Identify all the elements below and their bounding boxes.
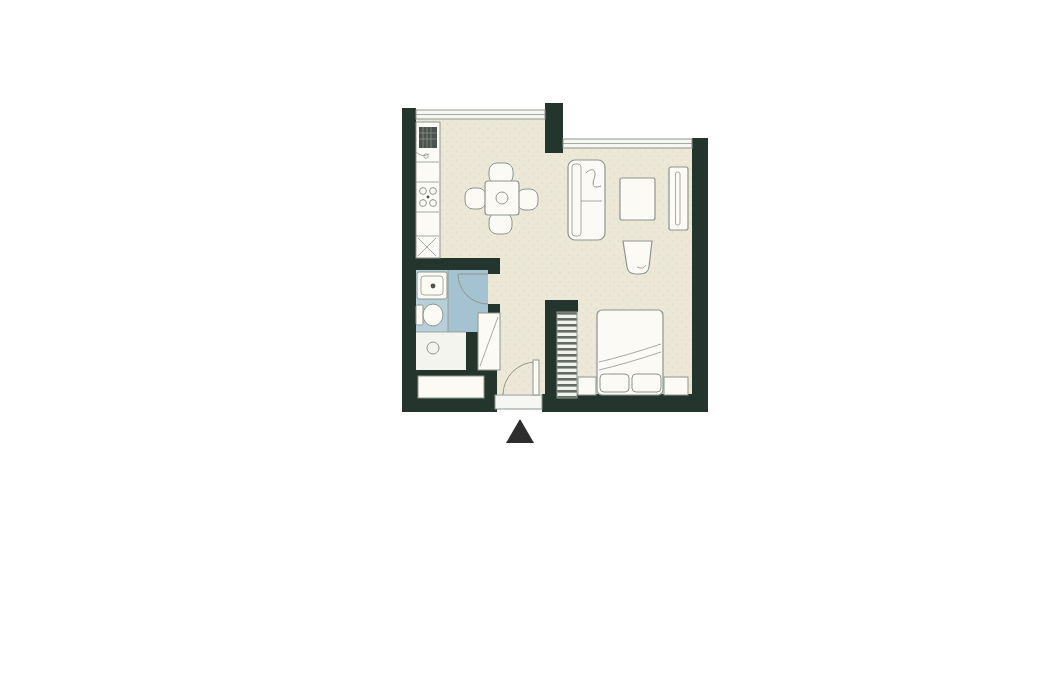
wardrobe-wall-top <box>545 300 578 312</box>
dining-chair-right <box>517 189 538 210</box>
double-bed <box>597 310 663 395</box>
dining-table <box>485 181 519 215</box>
door-threshold <box>495 395 542 409</box>
pillow-right <box>632 374 661 392</box>
bathroom <box>416 270 500 370</box>
entry-cabinet <box>418 376 484 398</box>
hall-closet <box>478 313 500 370</box>
wardrobe-wall-left <box>545 312 557 412</box>
entry-door-leaf <box>533 360 539 395</box>
bathroom-wall-top <box>402 258 500 270</box>
dining-chair-left <box>465 188 486 209</box>
bathroom-wall-right-upper <box>488 258 500 274</box>
tv-console <box>669 167 688 230</box>
nightstand-right <box>664 377 688 395</box>
wardrobe-rail <box>557 312 577 398</box>
bathroom-utility-floor <box>416 332 466 370</box>
armchair <box>623 241 652 274</box>
floor-plan <box>0 0 1064 679</box>
entrance-arrow-icon <box>506 419 534 443</box>
page <box>0 0 1064 679</box>
coffee-table <box>620 178 655 220</box>
kitchen <box>416 122 440 258</box>
wall-right <box>692 138 708 412</box>
pillow-left <box>600 374 629 392</box>
toilet <box>416 304 443 326</box>
wall-column-top <box>545 103 563 153</box>
nightstand-left <box>578 377 596 395</box>
dining-chair-bottom <box>489 213 512 234</box>
sofa <box>568 160 605 240</box>
refrigerator-icon <box>419 127 437 148</box>
bathroom-sink <box>417 272 447 299</box>
